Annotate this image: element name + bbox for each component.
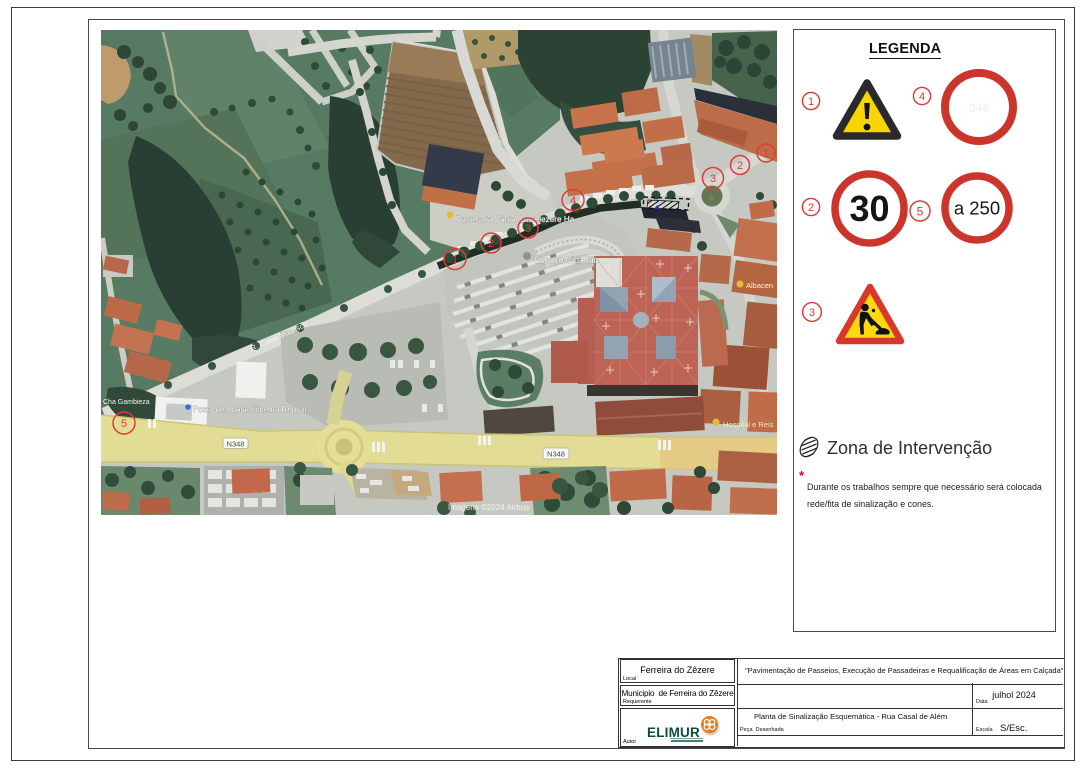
svg-text:1: 1 (808, 96, 814, 108)
svg-text:3: 3 (710, 173, 716, 185)
svg-text:Cha Gambieza: Cha Gambieza (103, 399, 150, 406)
svg-text:a 250: a 250 (954, 198, 1000, 219)
svg-text:1: 1 (452, 254, 458, 266)
svg-text:2: 2 (737, 160, 743, 172)
svg-text:Espaço Cidadão: Espaço Cidadão (534, 255, 599, 265)
svg-text:1: 1 (763, 148, 769, 160)
svg-text:346: 346 (969, 101, 989, 115)
svg-text:5: 5 (917, 205, 924, 219)
svg-text:Hospital e Reis: Hospital e Reis (723, 420, 774, 429)
svg-text:4: 4 (570, 195, 576, 207)
svg-text:5: 5 (121, 418, 127, 430)
svg-text:2: 2 (488, 238, 494, 250)
svg-text:4: 4 (919, 91, 925, 103)
svg-text:Imagens ©2024 Airbus: Imagens ©2024 Airbus (448, 503, 529, 512)
svg-text:N348: N348 (547, 450, 565, 459)
svg-text:2: 2 (808, 202, 814, 214)
svg-text:3: 3 (525, 223, 531, 235)
svg-text:30: 30 (849, 188, 889, 229)
svg-text:Posto de Abastecimento Repsol: Posto de Abastecimento Repsol (193, 405, 307, 414)
svg-text:Albacen: Albacen (746, 281, 773, 290)
svg-text:3: 3 (809, 307, 815, 319)
svg-text:Pastelaria Vânia Castelezere H: Pastelaria Vânia Castelezere Ha (456, 215, 575, 224)
svg-text:N348: N348 (227, 440, 245, 449)
